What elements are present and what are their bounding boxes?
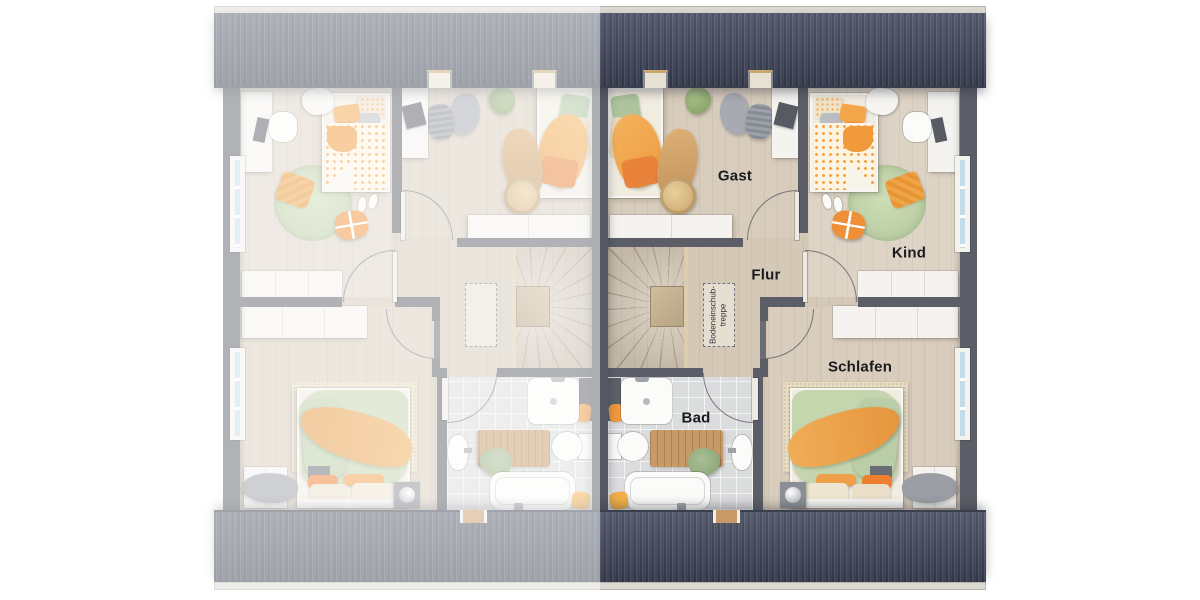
window-icon [230,156,245,252]
double-bed [790,388,903,508]
towel [609,491,629,510]
duvet-fold [327,126,357,152]
flower-decor [302,88,334,115]
toilet [552,432,582,461]
floorplan-scene: Bodeneinschub- treppe [0,0,1200,600]
window-glass [960,160,965,248]
guest-daybed [537,88,592,198]
duvet-fold [325,160,351,190]
shower [621,378,672,424]
wall-bath-hall [497,368,592,377]
attic-hatch-label: Bodeneinschub- treppe [709,283,730,347]
shower [528,378,579,424]
wardrobe [242,306,367,338]
lamp [785,487,801,503]
sideboard [610,215,732,238]
window-icon [230,348,245,440]
wall-bath-hall [608,368,703,377]
office-chair [269,112,297,142]
attic-hatch-outline [465,283,497,347]
duvet [813,123,875,190]
tub-basin [495,477,570,505]
roof-ridge-bottom [214,582,986,590]
roof-band-bottom [214,510,986,583]
bath-door-leaf [752,378,758,420]
room-label-bedroom: Schlafen [828,359,892,376]
footboard [299,499,408,506]
lamp [399,487,415,503]
room-label-bathroom: Bad [682,410,711,427]
pillow [540,155,579,189]
wall-guest-hall [457,238,592,247]
floorplan-unit-left [223,85,592,510]
wall-bath-corner [753,368,768,377]
faucet [728,448,736,453]
attic-hatch-outline: Bodeneinschub- treppe [703,283,735,347]
wall-hall-child [760,297,805,307]
party-wall [592,85,608,510]
faucet [464,448,472,453]
wall-bath-corner [432,368,447,377]
room-label-hallway: Flur [751,267,780,284]
nightstand [780,482,806,508]
bath-roof-window-icon [460,510,487,523]
room-label-child: Kind [892,245,926,262]
wall-outer-side [960,85,977,510]
wall-guest-child [798,88,808,233]
floorplan-unit-right: Bodeneinschub- treppe [608,85,977,510]
guest-daybed [608,88,663,198]
wardrobe [833,306,958,338]
duvet [325,123,387,190]
wall-bedroom-stub [760,359,768,368]
room-label-guest: Gast [718,168,752,185]
child-door-leaf [393,252,397,302]
bath-roof-window-icon [713,510,740,523]
child-door-leaf [803,252,807,302]
guest-door-leaf [401,192,405,240]
window-glass [960,352,965,436]
bathtub [625,472,710,510]
stair-stringer [684,245,688,377]
duvet-fold [843,126,873,152]
window-icon [955,156,970,252]
washbasin [448,435,468,470]
roof-band-top [214,13,986,88]
spiral-staircase [512,245,592,377]
wicker-pouf [660,178,696,214]
nightstand [394,482,420,508]
wall-guest-hall [608,238,743,247]
shower-drain [643,398,650,405]
guest-door-leaf [795,192,799,240]
duvet-fold [849,160,875,190]
attic-hatch-label-line2: treppe [719,283,729,347]
newel-post [516,286,550,327]
window-icon [955,348,970,440]
wall-outer-side [223,85,240,510]
washbasin [732,435,752,470]
newel-post [650,286,684,327]
wall-bedroom-stub [432,359,440,368]
shower-drain [550,398,557,405]
attic-hatch-label-line1: Bodeneinschub- [709,283,719,347]
bath-door-leaf [442,378,448,420]
bathtub [490,472,575,510]
tub-basin [630,477,705,505]
flower-decor [866,88,898,115]
towel [571,491,591,510]
wall-hall-child [395,297,440,307]
pillow [621,155,660,189]
dormer-window-icon [643,70,668,88]
wall-child-bedroom [858,297,960,307]
toilet [618,432,648,461]
footboard [792,499,901,506]
plant [489,87,515,114]
dormer-window-icon [532,70,557,88]
dormer-window-icon [427,70,452,88]
office-chair [903,112,931,142]
window-glass [235,160,240,248]
spiral-staircase [608,245,688,377]
stair-stringer [512,245,516,377]
sideboard [468,215,590,238]
wicker-pouf [504,178,540,214]
wall-child-bedroom [240,297,342,307]
dormer-window-icon [748,70,773,88]
window-glass [235,352,240,436]
